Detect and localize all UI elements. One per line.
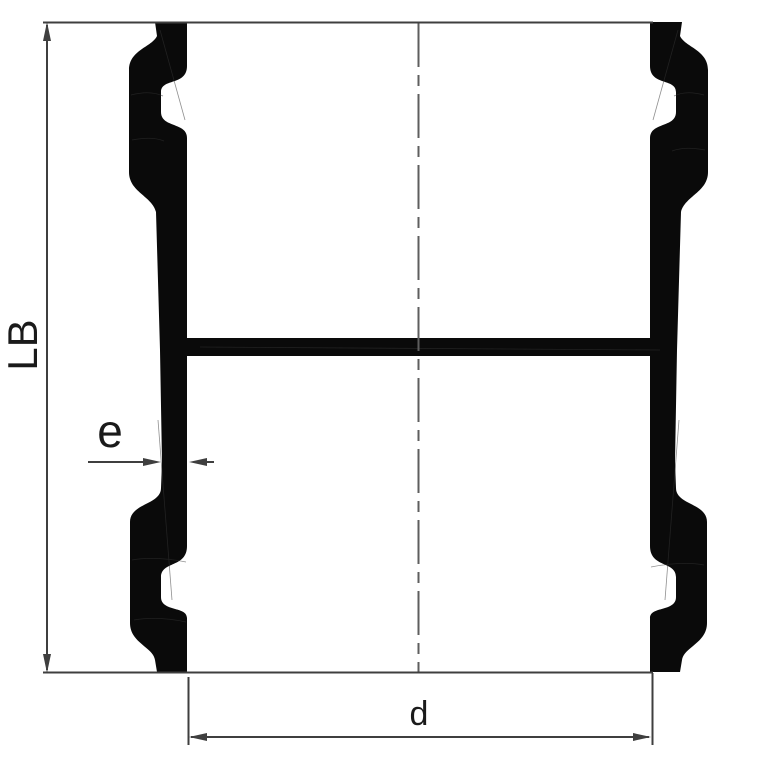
coupling-cross-section-diagram: LB e d [0, 0, 774, 768]
e-arrowhead-left [189, 458, 207, 466]
e-label: e [97, 405, 123, 457]
d-dimension: d [189, 673, 653, 745]
d-arrowhead-left [189, 733, 207, 741]
lb-label: LB [0, 319, 46, 370]
lb-arrowhead-down [43, 654, 51, 673]
diagram-canvas: LB e d [0, 0, 774, 768]
e-dimension: e [88, 405, 214, 466]
d-arrowhead-right [633, 733, 651, 741]
e-arrowhead-right [143, 458, 161, 466]
d-label: d [410, 695, 429, 733]
lb-arrowhead-up [43, 22, 51, 41]
